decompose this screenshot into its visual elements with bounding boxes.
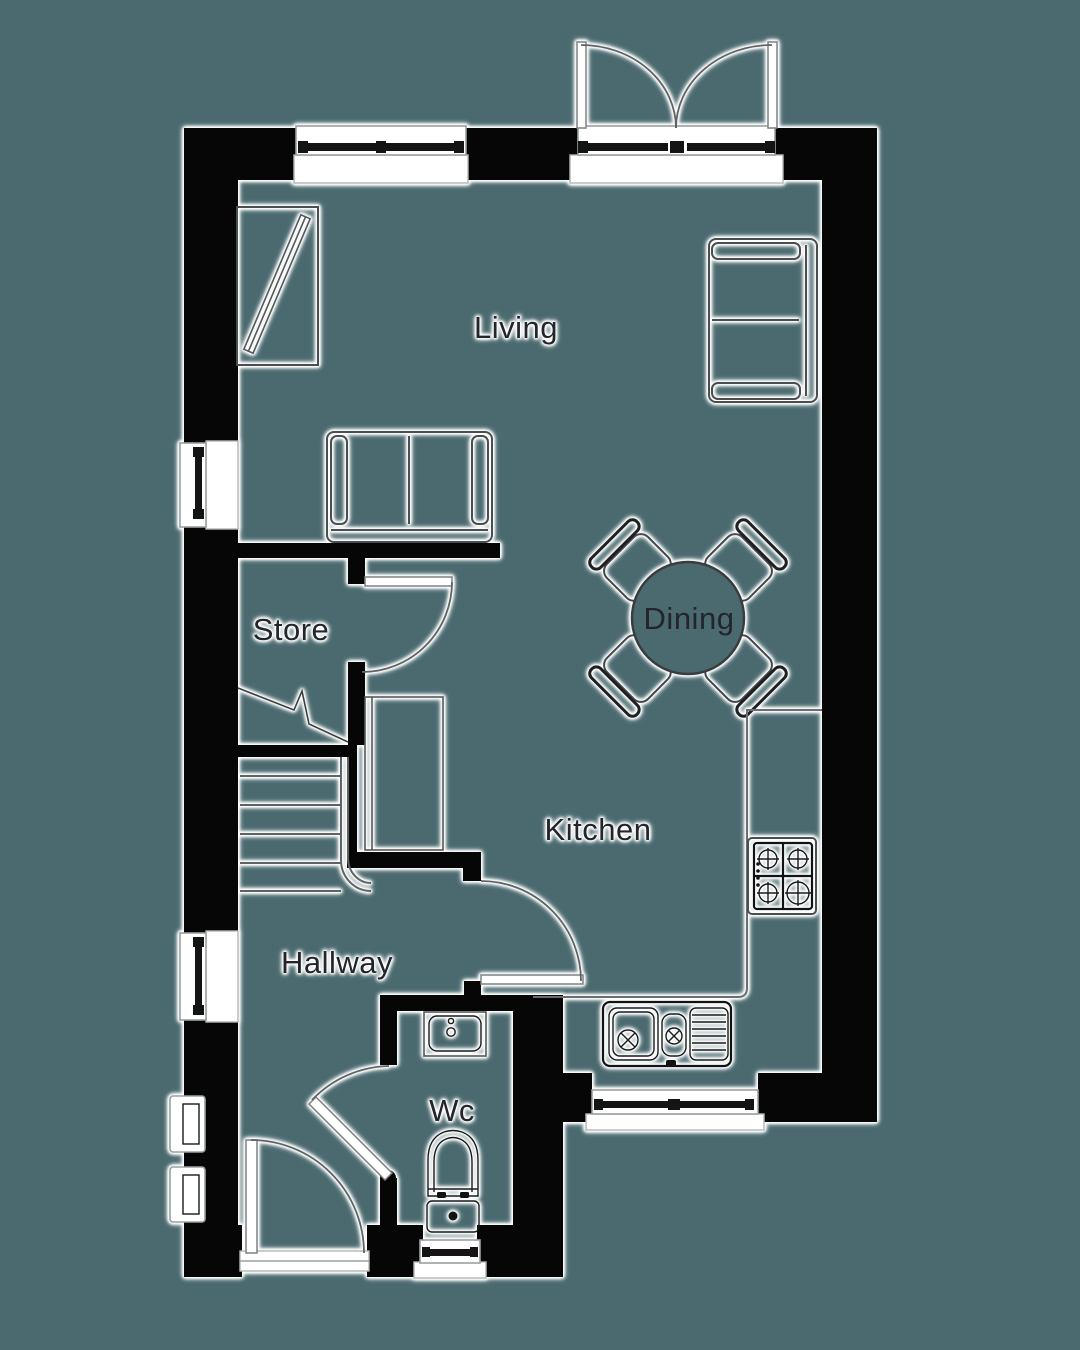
wc-toilet (427, 1131, 479, 1233)
front-door (240, 1140, 369, 1271)
room-label-living: Living (474, 310, 558, 345)
sofa-store-wall (327, 432, 492, 542)
store-door (362, 577, 452, 672)
kitchen-door (481, 881, 583, 984)
wc-door (309, 1066, 392, 1180)
sidelight-window-upper (170, 1096, 205, 1152)
room-label-hallway: Hallway (281, 945, 393, 980)
under-stair-cupboard (365, 697, 443, 850)
sidelight-window-lower (170, 1167, 205, 1222)
window-top-living (294, 126, 468, 183)
wc-basin (424, 1012, 486, 1056)
sink-double-drainer (603, 1002, 731, 1067)
tv-unit (237, 207, 318, 365)
room-label-kitchen: Kitchen (545, 812, 652, 847)
room-label-wc: Wc (429, 1093, 475, 1128)
room-label-dining: Dining (644, 601, 735, 636)
window-west-hallway (180, 931, 238, 1022)
floor-plan-svg: Living Store Dining Kitchen Hallway Wc (0, 0, 1080, 1350)
sofa-east (709, 239, 817, 402)
window-wc-bottom (414, 1240, 486, 1278)
floor-plan-page: Living Store Dining Kitchen Hallway Wc (0, 0, 1080, 1350)
french-doors-top (570, 42, 783, 183)
hob-4-burner (748, 838, 816, 914)
walls (184, 128, 877, 1277)
window-west-living (180, 441, 238, 529)
room-label-store: Store (253, 612, 330, 647)
window-kitchen-bottom (586, 1090, 764, 1130)
